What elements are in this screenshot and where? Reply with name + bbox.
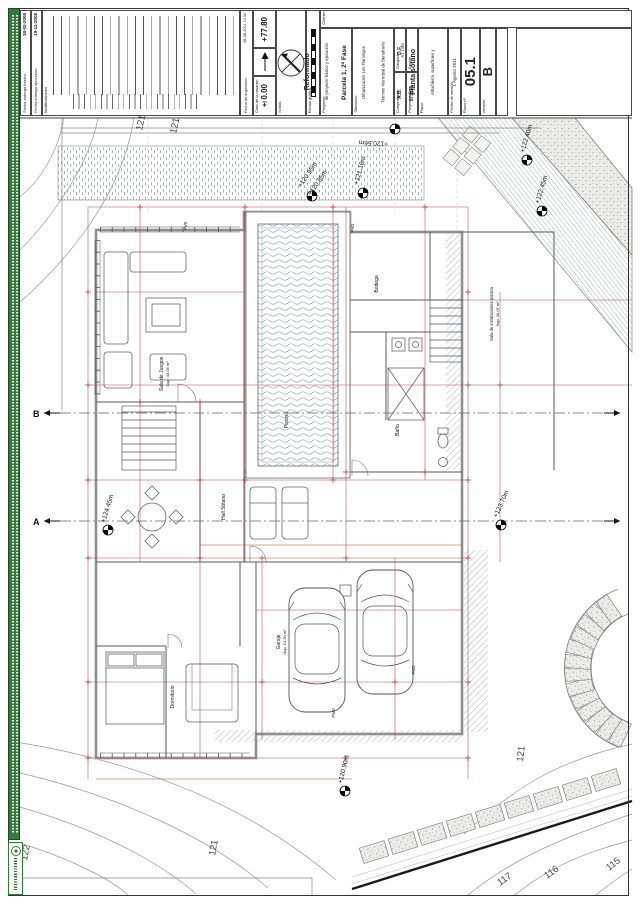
north-arrow-icon: [259, 52, 271, 72]
plano-sub1: Albañilería, superficies y: [430, 49, 435, 94]
situacion-l2: Urbanización Los Flamingos: [361, 46, 366, 99]
date-basico-cell: 18-02-2008 Fecha entrega básico:: [20, 10, 31, 116]
ejecucion-label: Fecha entrega ejecución:: [34, 68, 38, 113]
plano-num-cell: 05.1 Plano nº:: [461, 28, 480, 116]
legal-text-column: [12, 15, 14, 833]
comprobado-label: Comprobado:: [396, 89, 400, 113]
fecha-version-cell: 1 Agosto 2011 Fecha de versión:: [448, 28, 461, 116]
architect-logo-box: [8, 842, 23, 895]
company-stamp-cell: [516, 28, 632, 116]
cliente-label: Cliente:: [322, 11, 326, 25]
plano-title: Planta sótano: [410, 49, 417, 95]
firm-name-text: [14, 858, 17, 890]
plano-num-value: 05.1: [462, 57, 480, 86]
drawing-sheet: { "sheet": { "revisions": { "basico_labe…: [0, 0, 640, 906]
ejecucion-date: 19-11-2008: [34, 13, 39, 36]
print-date-cell: 08-08-2011 10:34 Fecha de impresión:: [240, 10, 253, 116]
proyecto-sub1: de proyecto básico y ejecución: [324, 43, 329, 100]
proyecto-title: Reformado: [304, 54, 311, 91]
plano-label: Plano:: [420, 102, 424, 113]
firm-logo-icon: [11, 846, 21, 856]
cliente-cell: Cliente:: [320, 10, 632, 28]
version-value: B: [480, 67, 496, 76]
revision-entries: [73, 94, 199, 109]
version-cell: B Versión:: [480, 28, 496, 116]
version-label: Versión:: [482, 99, 486, 113]
basico-date: 18-02-2008: [23, 13, 28, 36]
situacion-l3: Término Municipal de Benahavís: [380, 42, 385, 103]
date-ejecucion-cell: 19-11-2008 Fecha entrega ejecución:: [31, 10, 42, 116]
fecha-version-label: Fecha de versión:: [450, 81, 454, 113]
altitude-value: +77.80: [260, 17, 270, 42]
north-arrow-cell: [253, 48, 276, 76]
rasante-cell: ±0.00 Cota de la rasante:: [253, 76, 276, 116]
print-date-value: 08-08-2011 10:34: [244, 13, 248, 43]
legal-notice-strip: [8, 8, 20, 840]
rasante-label: Cota de la rasante:: [255, 79, 259, 113]
situacion-label: Situación:: [354, 95, 358, 113]
legal-text-column: [16, 15, 18, 833]
revision-table: Modificaciones: [42, 10, 240, 116]
revision-entries: [53, 16, 234, 95]
print-date-label: Fecha de impresión:: [244, 77, 248, 113]
proyecto-label: Proyecto:: [322, 96, 326, 113]
plano-num-label: Plano nº:: [463, 97, 467, 113]
basico-label: Fecha entrega básico:: [23, 73, 27, 113]
notas-label: Notas:: [278, 101, 282, 113]
altitude-cell: +77.80: [253, 10, 276, 48]
situacion-title: Parcela 1, 2ª Fase: [341, 45, 348, 100]
spare-cell: [496, 28, 508, 116]
modifications-label: Modificaciones: [44, 87, 48, 113]
rasante-value: ±0.00: [260, 84, 270, 109]
sheet-border: [8, 8, 629, 896]
plano-cell: Planta sótano Albañilería, superficies y…: [418, 28, 448, 116]
situacion-cell: Parcela 1, 2ª Fase Urbanización Los Flam…: [352, 28, 394, 116]
